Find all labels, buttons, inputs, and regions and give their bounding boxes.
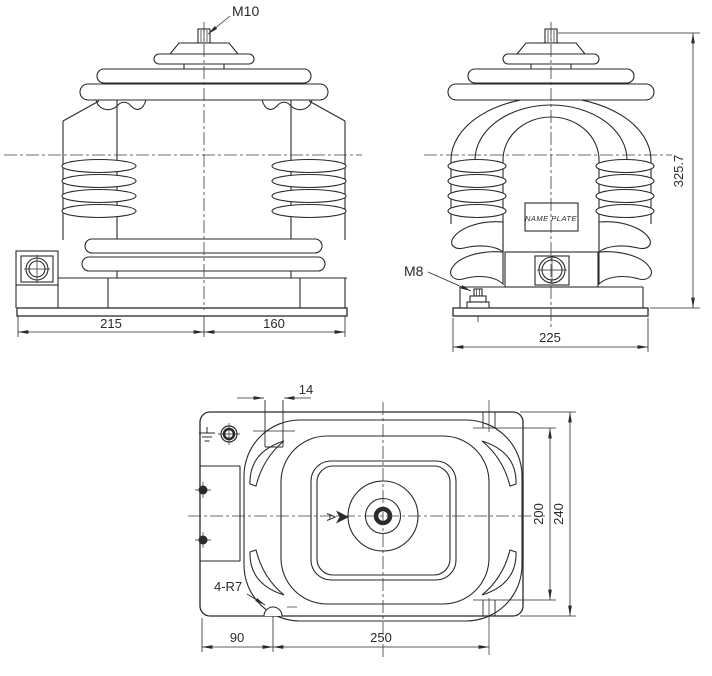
front-bottom-shed-1 [85,239,322,253]
ground-symbol-icon [199,427,215,441]
dim-plan-slot-width: 14 [299,382,313,397]
label-m8: M8 [404,263,424,279]
plan-base-plate [200,412,523,616]
side-base-plate [453,308,648,316]
dim-plan-slot-span: 200 [531,503,546,525]
r7-leader-line [247,594,265,605]
dim-plan-plate-height: 240 [551,503,566,525]
plan-view [195,400,523,655]
dim-plan-edge-to-notch: 90 [230,630,244,645]
front-bottom-shed-2 [82,257,325,271]
plan-ground-bolt [218,423,240,445]
label-view-a: A [324,513,338,521]
label-corner-radius: 4-R7 [214,579,242,594]
label-m10: M10 [232,3,259,19]
dim-front-base-right: 160 [263,316,285,331]
plan-r7-notch [264,607,282,616]
dim-side-total-height: 325.7 [671,155,686,188]
side-terminal-box [505,252,598,287]
technical-drawing-sheet: 215 160 M10 [0,0,712,676]
m10-leader-line [208,16,230,34]
m8-ground-bolt [467,289,489,322]
dim-front-base-left: 215 [100,316,122,331]
front-view [16,29,347,316]
plan-left-bolts [195,482,211,548]
front-base-plate [17,308,347,316]
dim-plan-notch-to-slot: 250 [370,630,392,645]
transformer-dimension-drawing: 215 160 M10 [0,0,712,676]
dim-side-base-width: 225 [539,330,561,345]
front-terminal-box [16,251,58,308]
